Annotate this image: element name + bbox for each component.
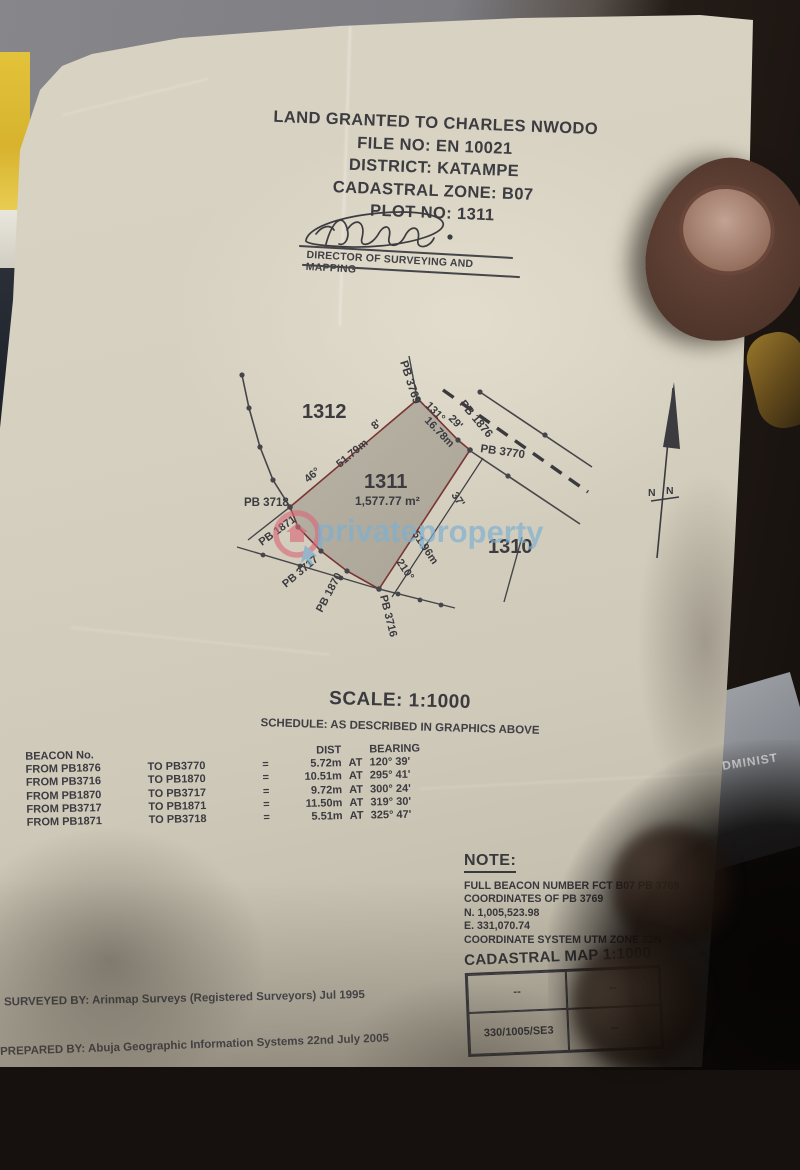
north-letter: N — [666, 485, 674, 497]
fingertip — [572, 938, 702, 1068]
cell-dist: 10.51m — [276, 770, 342, 785]
cell-eq: = — [257, 811, 277, 825]
thumb-nail — [669, 175, 784, 286]
beacon-pb3718-label: PB 3718 — [244, 497, 289, 509]
north-letter: N — [648, 487, 656, 499]
watermark-text: privateproperty — [316, 513, 544, 551]
cell-to: TO PB3718 — [149, 812, 257, 827]
cell-at: AT — [341, 757, 369, 771]
plot-1311-area-label: 1,577.77 m² — [355, 494, 420, 508]
plot-1311-label: 1311 — [364, 471, 407, 493]
fingertip — [612, 826, 732, 946]
beacon-pb3769-label: PB 3769 — [397, 359, 422, 405]
cell-at: AT — [342, 770, 370, 784]
beacon-pb1870-label: PB 1870 — [314, 571, 345, 614]
ne-bearing-min: 29' — [446, 413, 465, 432]
header-spacer — [255, 746, 275, 760]
cell-eq: = — [256, 798, 276, 812]
beacon-pb3770-label: PB 3770 — [480, 443, 526, 461]
cell-eq: = — [256, 772, 276, 786]
cell-dist: 11.50m — [276, 797, 342, 812]
cell-at: AT — [342, 783, 370, 797]
note-heading: NOTE: — [464, 852, 516, 873]
cell-eq: = — [256, 785, 276, 799]
plot-1312-label: 1312 — [302, 401, 347, 423]
se-bearing-deg: 210° — [394, 557, 417, 583]
cell-bearing: 325° 47' — [371, 808, 451, 823]
cell-dist: 9.72m — [276, 784, 342, 799]
cell-at: AT — [343, 809, 371, 823]
beacon-schedule-table: BEACON No. DIST BEARING FROM PB1876 TO P… — [25, 741, 479, 830]
north-arrow: N N — [648, 382, 680, 558]
header-spacer — [341, 744, 369, 758]
cell-from: FROM PB1871 — [27, 814, 149, 830]
cell-at: AT — [342, 796, 370, 810]
beacon-pb3716-label: PB 3716 — [377, 594, 399, 638]
cell-dist: 5.51m — [277, 810, 343, 825]
cell-eq: = — [255, 759, 275, 773]
beacon-pb3717-label: PB 3717 — [280, 554, 321, 591]
beacon-pb1876-label: PB 1876 — [457, 398, 495, 440]
